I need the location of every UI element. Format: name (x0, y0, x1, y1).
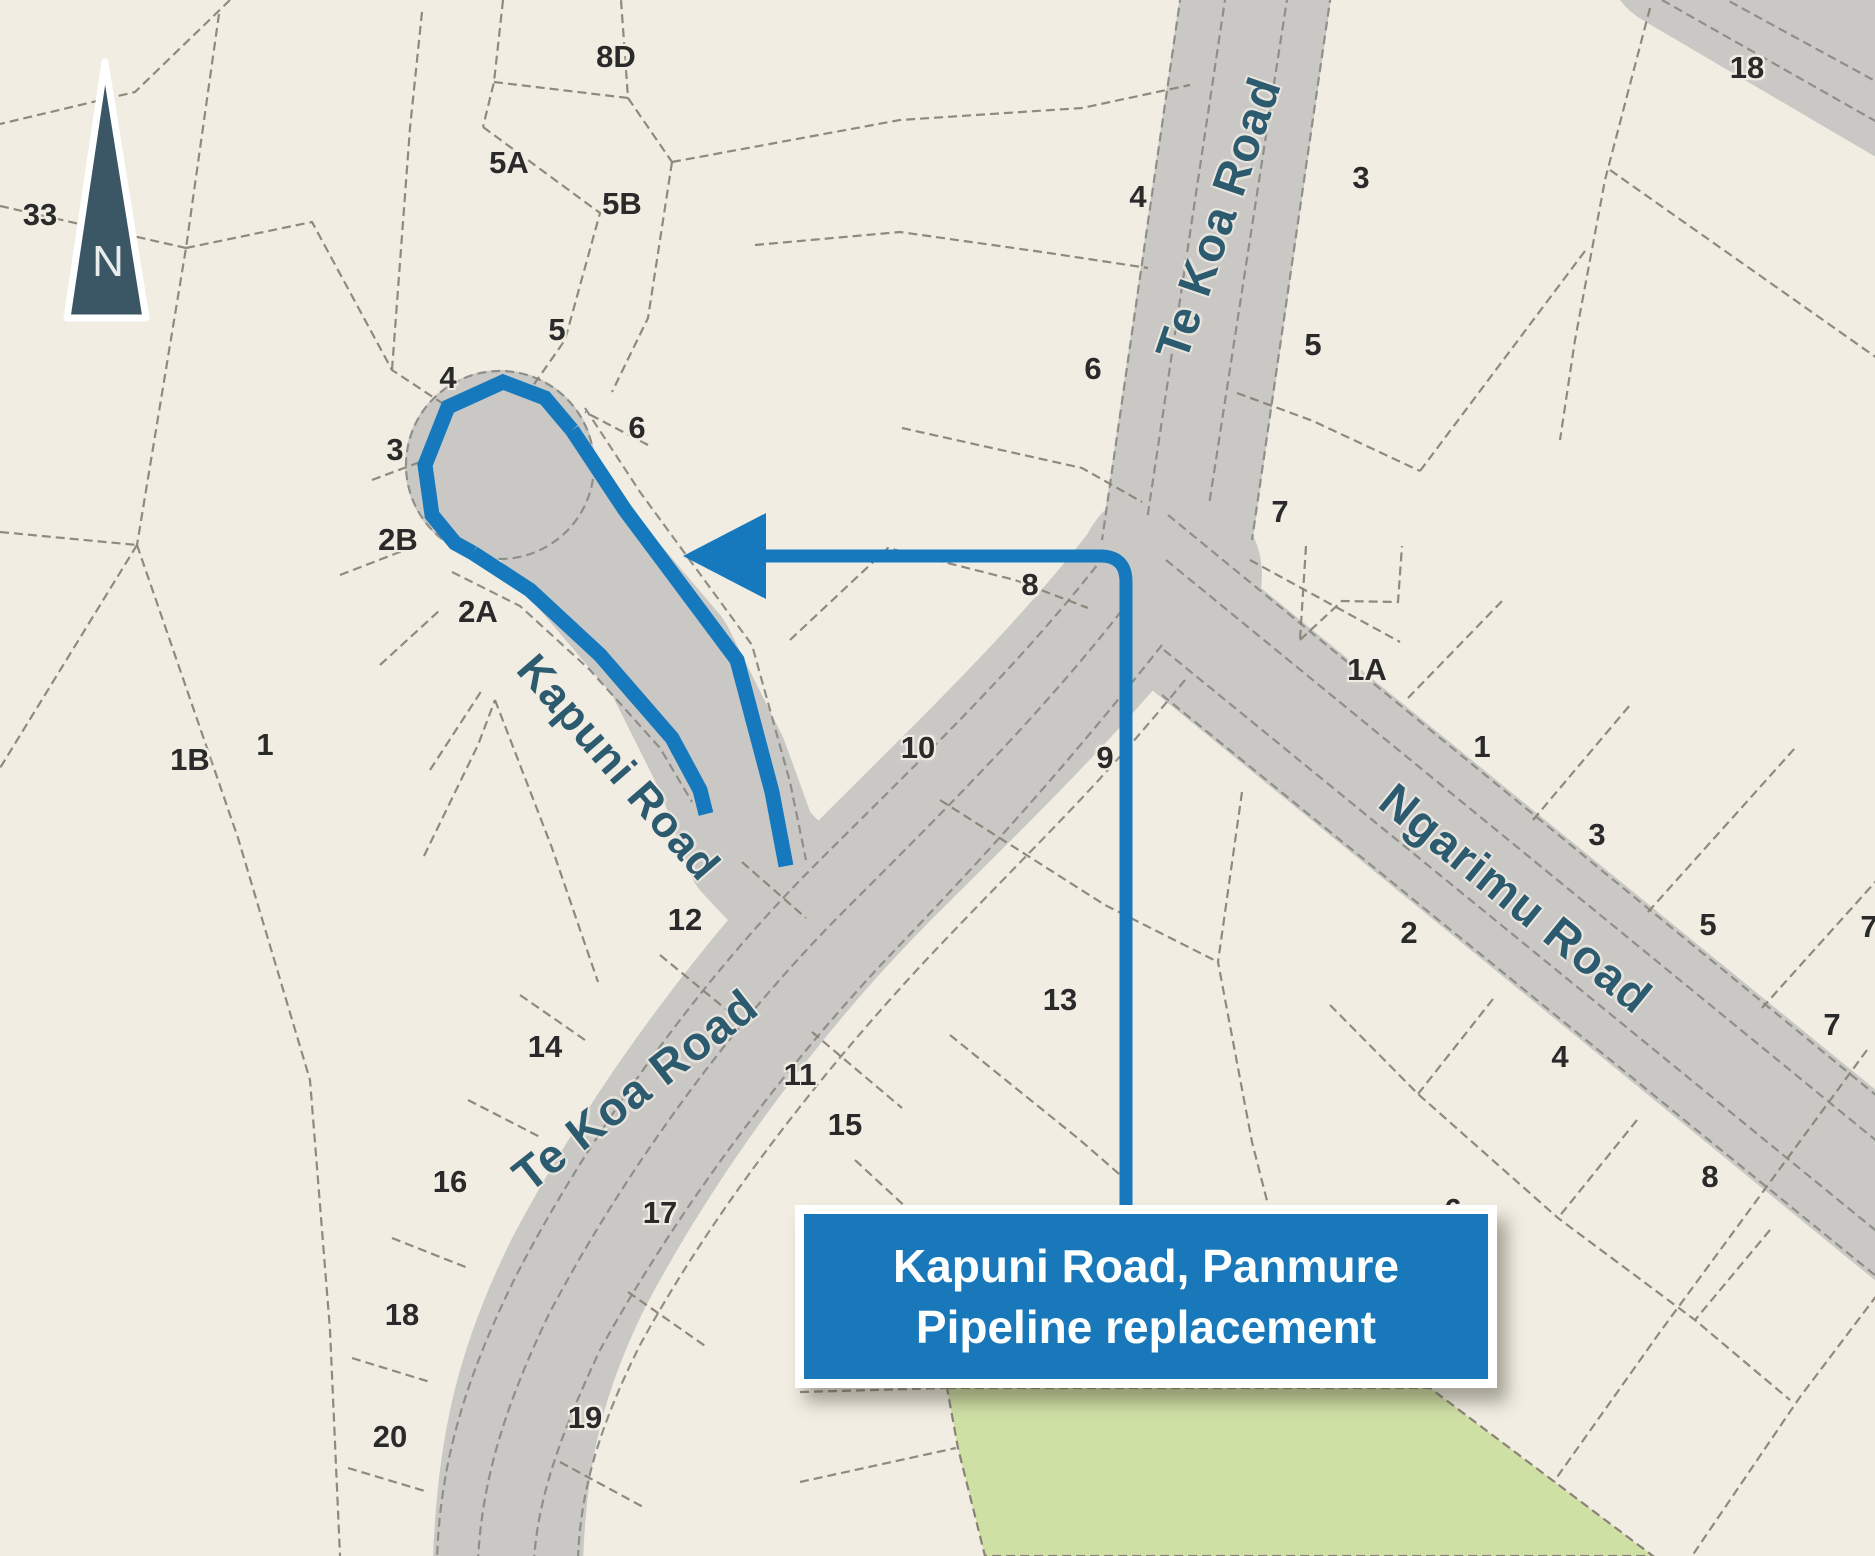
lot-number: 3 (1588, 817, 1605, 853)
lot-number: 18 (1730, 50, 1764, 86)
callout-line-1: Kapuni Road, Panmure (893, 1240, 1399, 1293)
map-canvas: N 338D5A5B5432B2A61B14635781091214111513… (0, 0, 1875, 1556)
lot-number: 8 (1701, 1159, 1718, 1195)
lot-number: 2 (1400, 915, 1417, 951)
lot-number: 5 (1304, 327, 1321, 363)
lot-number: 5 (548, 312, 565, 348)
lot-number: 1 (1473, 729, 1490, 765)
lot-number: 6 (1084, 351, 1101, 387)
lot-number: 6 (628, 410, 645, 446)
callout-line-2: Pipeline replacement (916, 1301, 1376, 1354)
lot-number: 13 (1043, 982, 1077, 1018)
lot-number: 5 (1699, 907, 1716, 943)
lot-number: 4 (439, 360, 456, 396)
callout-title-box: Kapuni Road, Panmure Pipeline replacemen… (795, 1205, 1497, 1388)
lot-number: 3 (1352, 160, 1369, 196)
road-name-label: Te Koa Road (1144, 70, 1292, 367)
lot-number: 12 (668, 902, 702, 938)
lot-number: 8D (596, 39, 636, 75)
lot-number: 11 (784, 1057, 817, 1093)
lot-number: 18 (385, 1297, 419, 1333)
lot-number: 19 (568, 1400, 602, 1436)
lot-number: 10 (901, 730, 935, 766)
road-name-label: Te Koa Road (502, 978, 768, 1203)
lot-number: 16 (433, 1164, 467, 1200)
lot-number: 17 (643, 1195, 677, 1231)
lot-number: 20 (373, 1419, 407, 1455)
road-name-label: Ngarimu Road (1369, 772, 1663, 1024)
road-name-label: Kapuni Road (507, 645, 730, 891)
lot-number: 2B (378, 522, 418, 558)
lot-number: 9 (1096, 740, 1113, 776)
lot-number: 7 (1823, 1007, 1840, 1043)
lot-number: 5A (489, 145, 529, 181)
lot-number: 7 (1271, 494, 1288, 530)
lot-number: 8 (1021, 567, 1038, 603)
lot-number: 5B (602, 186, 642, 222)
lot-number: 4 (1551, 1039, 1568, 1075)
north-arrow-letter: N (92, 237, 124, 287)
lot-number: 14 (528, 1029, 562, 1065)
lot-number: 1B (170, 742, 210, 778)
lot-number: 3 (386, 432, 403, 468)
lot-number: 15 (828, 1107, 862, 1143)
lot-number: 7 (1860, 909, 1875, 945)
lot-number: 1 (256, 727, 273, 763)
lot-number: 1A (1347, 652, 1387, 688)
lot-number: 2A (458, 594, 498, 630)
lot-number: 4 (1129, 179, 1146, 215)
lot-number: 33 (23, 197, 57, 233)
